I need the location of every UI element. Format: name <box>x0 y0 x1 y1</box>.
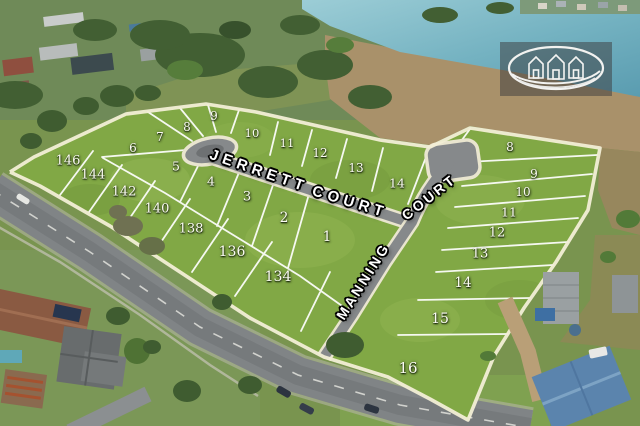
grey-roof-house <box>56 326 129 391</box>
agency-logo-watermark <box>500 42 612 96</box>
pool <box>0 350 22 363</box>
three-houses-ellipse-logo <box>500 42 612 96</box>
water-tank <box>569 324 581 336</box>
small-shed <box>612 275 638 313</box>
rust-shed <box>1 369 47 409</box>
aerial-estate-photo: 146 144 142 140 138 136 134 6 7 8 9 5 4 … <box>0 0 640 426</box>
blue-container <box>535 308 555 321</box>
